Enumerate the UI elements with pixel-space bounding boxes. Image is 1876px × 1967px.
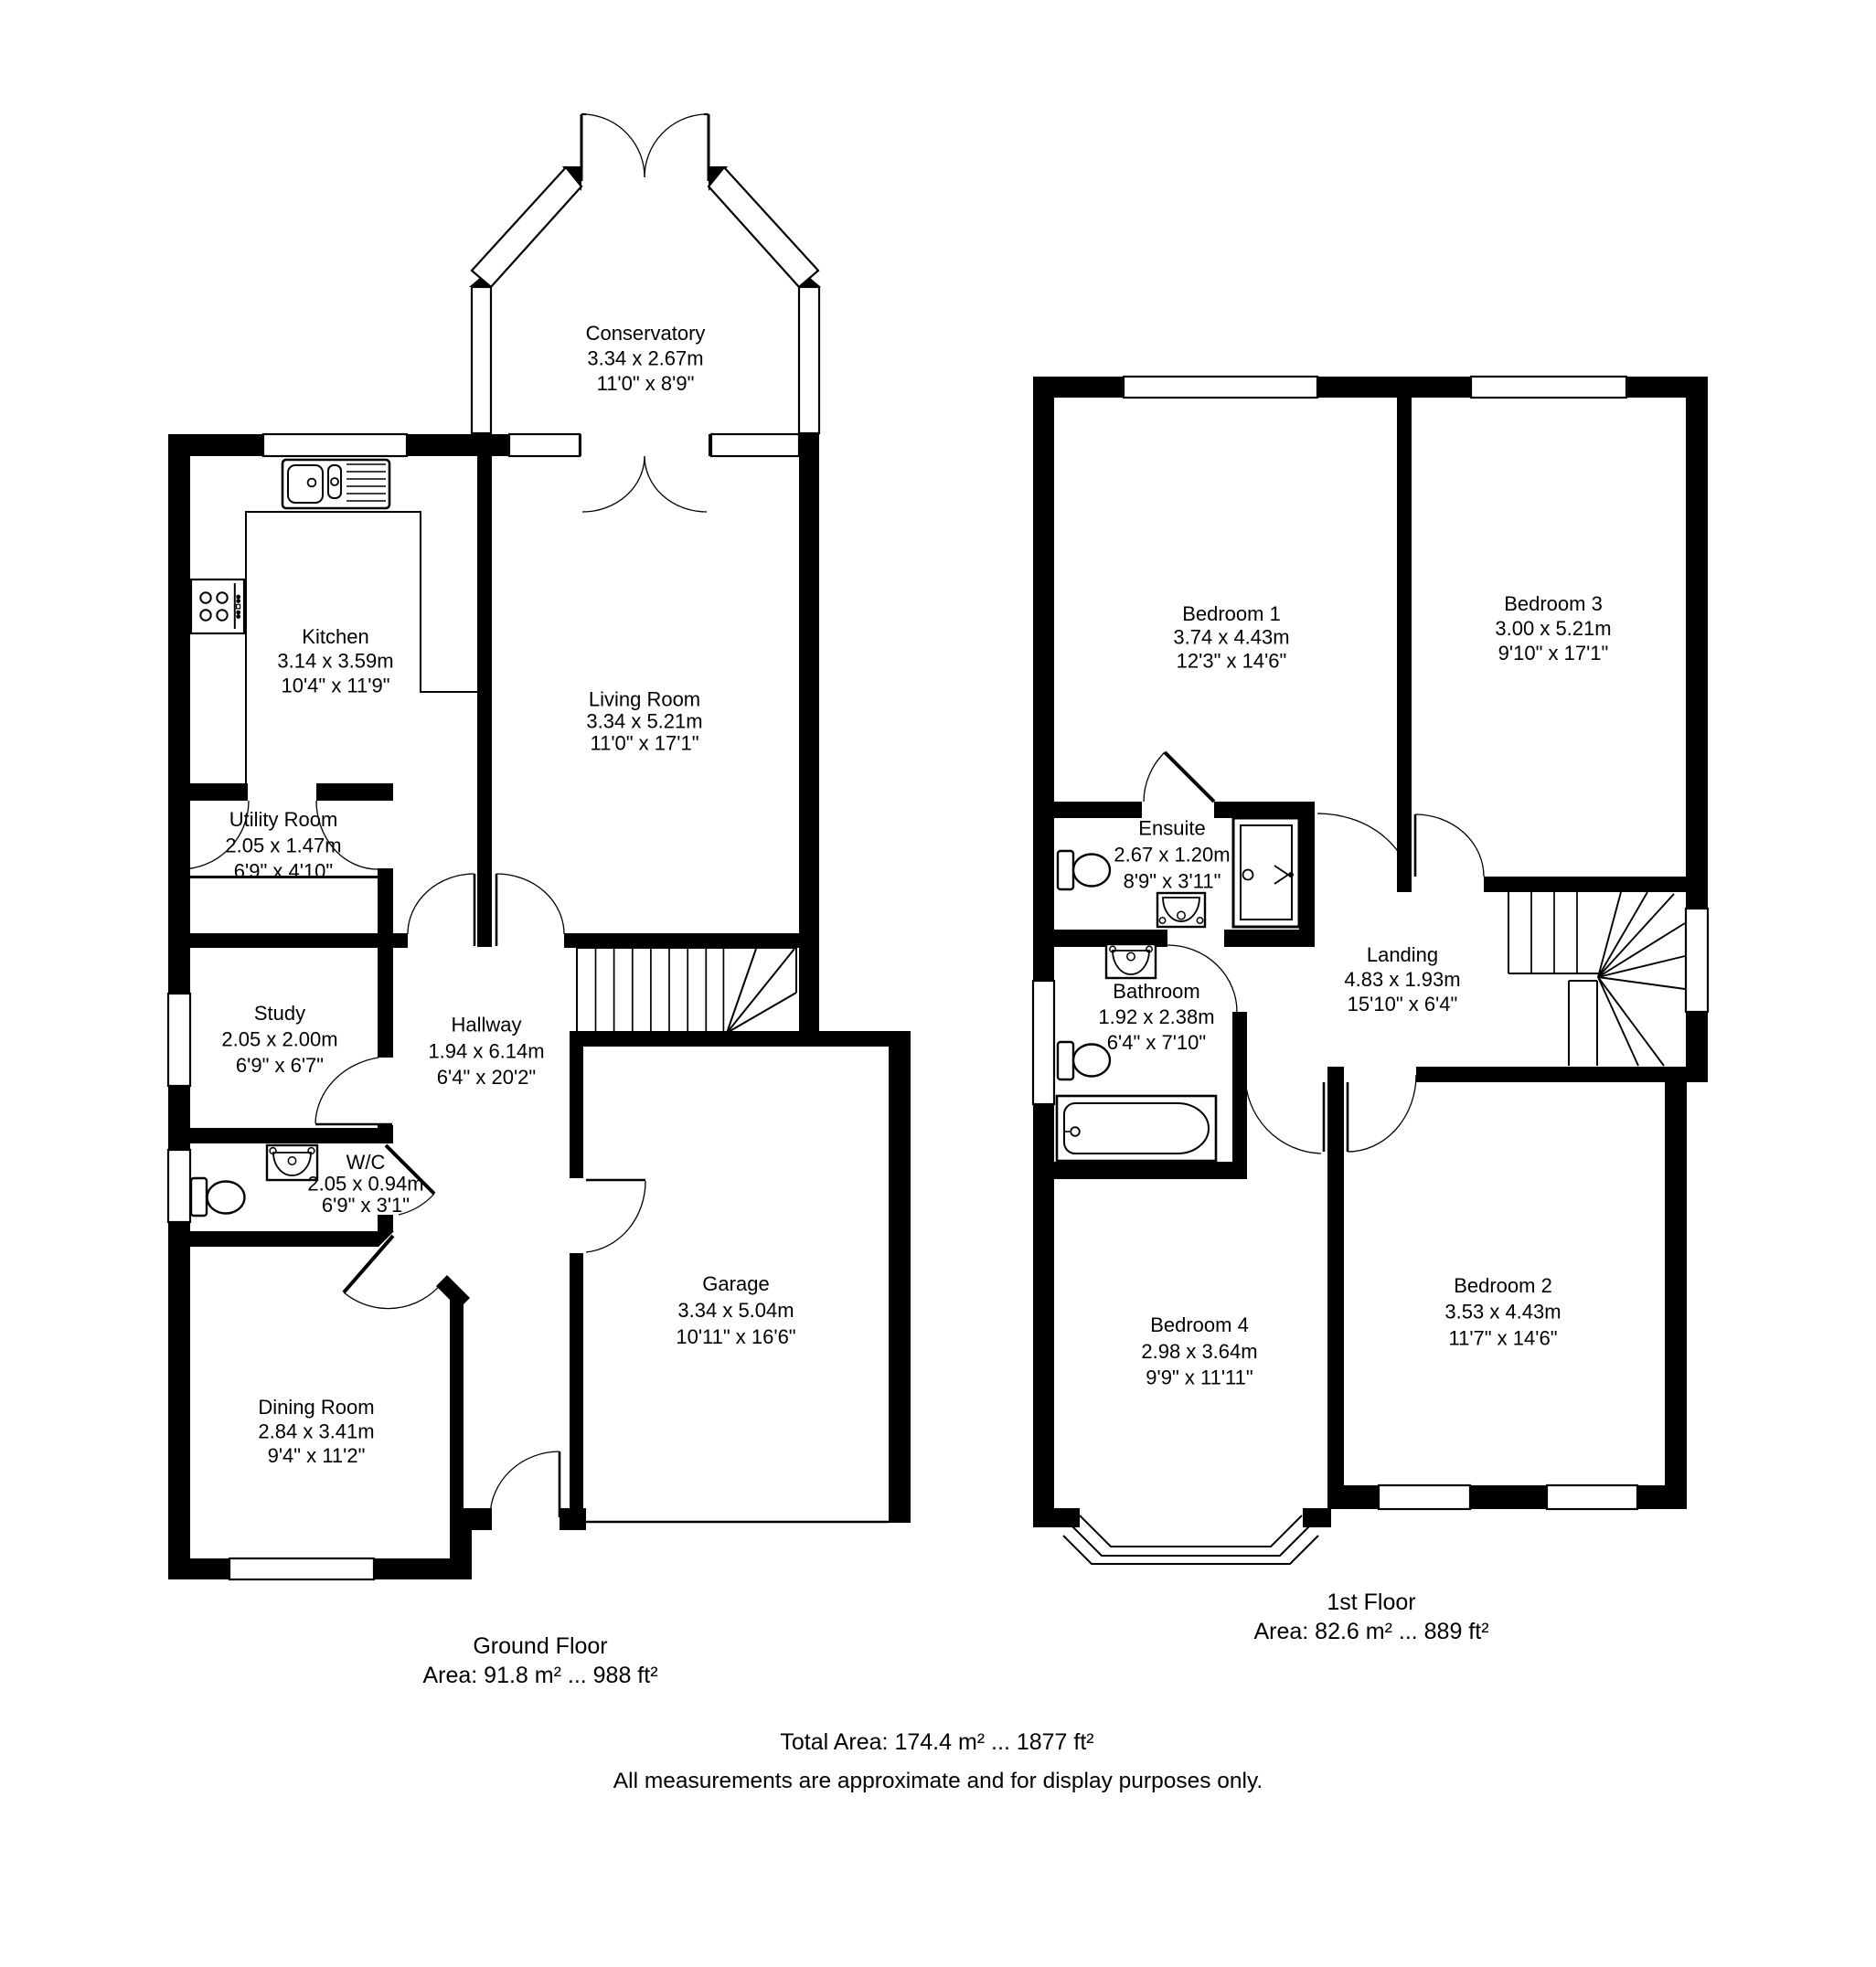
svg-text:2.98 x 3.64m: 2.98 x 3.64m <box>1141 1340 1257 1363</box>
svg-text:11'0" x 8'9": 11'0" x 8'9" <box>597 372 695 395</box>
svg-text:6'9" x 4'10": 6'9" x 4'10" <box>234 860 333 883</box>
svg-text:8'9" x 3'11": 8'9" x 3'11" <box>1124 870 1221 893</box>
svg-text:6'9" x 3'1": 6'9" x 3'1" <box>322 1194 410 1217</box>
svg-text:2.05 x 1.47m: 2.05 x 1.47m <box>225 834 341 856</box>
svg-text:2.05 x 2.00m: 2.05 x 2.00m <box>221 1028 337 1051</box>
svg-text:Hallway: Hallway <box>451 1014 521 1037</box>
svg-text:15'10" x 6'4": 15'10" x 6'4" <box>1348 993 1458 1015</box>
svg-text:1st Floor: 1st Floor <box>1327 1590 1415 1615</box>
svg-text:Conservatory: Conservatory <box>586 322 706 345</box>
svg-text:Bedroom 1: Bedroom 1 <box>1182 602 1281 625</box>
svg-text:Kitchen: Kitchen <box>302 625 368 648</box>
svg-text:Study: Study <box>254 1002 305 1025</box>
svg-text:Bathroom: Bathroom <box>1113 980 1199 1003</box>
svg-text:6'9" x 6'7": 6'9" x 6'7" <box>236 1054 324 1077</box>
svg-text:Total Area: 174.4 m² ... 1877: Total Area: 174.4 m² ... 1877 ft² <box>780 1729 1093 1755</box>
svg-text:Bedroom 4: Bedroom 4 <box>1150 1313 1249 1336</box>
svg-text:6'4" x 7'10": 6'4" x 7'10" <box>1107 1031 1206 1054</box>
svg-text:Area: 82.6 m² ... 889 ft²: Area: 82.6 m² ... 889 ft² <box>1253 1619 1488 1644</box>
svg-text:Ground Floor: Ground Floor <box>473 1633 607 1659</box>
svg-text:4.83 x 1.93m: 4.83 x 1.93m <box>1344 968 1460 991</box>
svg-text:Bedroom 2: Bedroom 2 <box>1454 1274 1552 1297</box>
svg-text:Ensuite: Ensuite <box>1138 817 1205 840</box>
svg-text:1.94 x 6.14m: 1.94 x 6.14m <box>428 1039 544 1062</box>
svg-text:Utility Room: Utility Room <box>229 808 338 831</box>
svg-text:6'4" x 20'2": 6'4" x 20'2" <box>437 1066 536 1089</box>
svg-text:Landing: Landing <box>1367 943 1438 966</box>
svg-text:3.53 x 4.43m: 3.53 x 4.43m <box>1444 1301 1561 1324</box>
svg-text:3.34 x 2.67m: 3.34 x 2.67m <box>587 347 703 370</box>
svg-text:10'4" x 11'9": 10'4" x 11'9" <box>281 674 389 696</box>
svg-text:9'9" x 11'11": 9'9" x 11'11" <box>1146 1366 1252 1389</box>
svg-text:3.34 x 5.21m: 3.34 x 5.21m <box>586 709 702 732</box>
svg-text:3.34 x 5.04m: 3.34 x 5.04m <box>677 1299 794 1322</box>
svg-text:9'10" x 17'1": 9'10" x 17'1" <box>1498 642 1609 665</box>
svg-text:3.00 x 5.21m: 3.00 x 5.21m <box>1495 617 1611 640</box>
svg-text:Dining Room: Dining Room <box>258 1396 374 1419</box>
svg-text:3.14 x 3.59m: 3.14 x 3.59m <box>277 650 393 673</box>
svg-text:Area: 91.8 m² ... 988 ft²: Area: 91.8 m² ... 988 ft² <box>422 1663 657 1688</box>
svg-text:11'0" x 17'1": 11'0" x 17'1" <box>590 731 698 754</box>
svg-text:W/C: W/C <box>346 1151 386 1174</box>
svg-text:All measurements are approxima: All measurements are approximate and for… <box>613 1769 1263 1793</box>
svg-text:2.84 x 3.41m: 2.84 x 3.41m <box>258 1420 374 1443</box>
svg-text:2.67 x 1.20m: 2.67 x 1.20m <box>1114 844 1230 867</box>
svg-text:9'4" x 11'2": 9'4" x 11'2" <box>268 1444 366 1467</box>
svg-text:12'3" x 14'6": 12'3" x 14'6" <box>1177 649 1287 672</box>
svg-text:Bedroom 3: Bedroom 3 <box>1504 592 1603 615</box>
svg-text:10'11" x 16'6": 10'11" x 16'6" <box>676 1325 795 1348</box>
svg-text:Garage: Garage <box>702 1272 769 1295</box>
svg-text:1.92 x 2.38m: 1.92 x 2.38m <box>1098 1005 1214 1028</box>
svg-text:11'7" x 14'6": 11'7" x 14'6" <box>1448 1326 1557 1349</box>
svg-text:2.05 x 0.94m: 2.05 x 0.94m <box>307 1173 423 1196</box>
svg-text:3.74 x 4.43m: 3.74 x 4.43m <box>1173 626 1289 649</box>
svg-text:Living Room: Living Room <box>589 687 700 710</box>
